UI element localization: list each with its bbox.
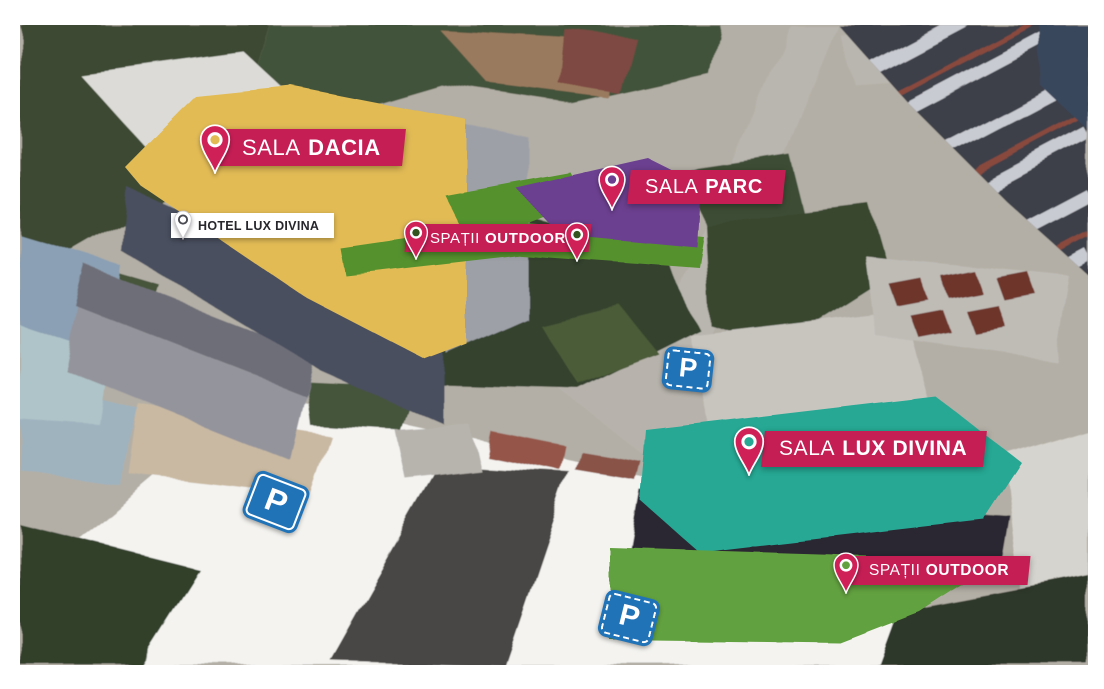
sala-dacia-pin-icon[interactable] <box>196 124 234 174</box>
sala-parc-badge[interactable]: SALAPARC <box>627 170 786 204</box>
hotel-pin-icon[interactable] <box>172 210 194 240</box>
parking-symbol: P <box>678 354 699 383</box>
sala-lux-divina-label: SALALUX DIVINA <box>779 437 967 461</box>
parking-symbol: P <box>616 600 643 634</box>
outdoor-bottom-pin-icon[interactable] <box>830 552 862 594</box>
sala-parc-label: SALAPARC <box>645 176 763 199</box>
sala-lux-divina-badge[interactable]: SALALUX DIVINA <box>761 431 987 467</box>
parking-sign-2[interactable]: P <box>661 346 715 394</box>
sala-parc-pin-icon[interactable] <box>595 165 629 211</box>
sala-lux-divina-pin-icon[interactable] <box>730 426 768 476</box>
parking-symbol: P <box>261 482 292 520</box>
venue-map-page: SALADACIA SALAPARC SALALUX DIVINA SPAȚII… <box>0 0 1104 689</box>
hotel-lux-divina-label: HOTEL LUX DIVINA <box>198 219 319 233</box>
hotel-lux-divina-badge[interactable]: HOTEL LUX DIVINA <box>171 213 334 238</box>
outdoor-top-right-pin-icon[interactable] <box>562 222 592 262</box>
outdoor-bottom-label: SPAȚIIOUTDOOR <box>869 562 1009 580</box>
sala-dacia-badge[interactable]: SALADACIA <box>216 129 406 166</box>
outdoor-top-label: SPAȚIIOUTDOOR <box>430 230 566 247</box>
outdoor-bottom-badge[interactable]: SPAȚIIOUTDOOR <box>849 556 1030 585</box>
outdoor-top-left-pin-icon[interactable] <box>401 220 431 260</box>
sala-dacia-label: SALADACIA <box>242 135 381 161</box>
